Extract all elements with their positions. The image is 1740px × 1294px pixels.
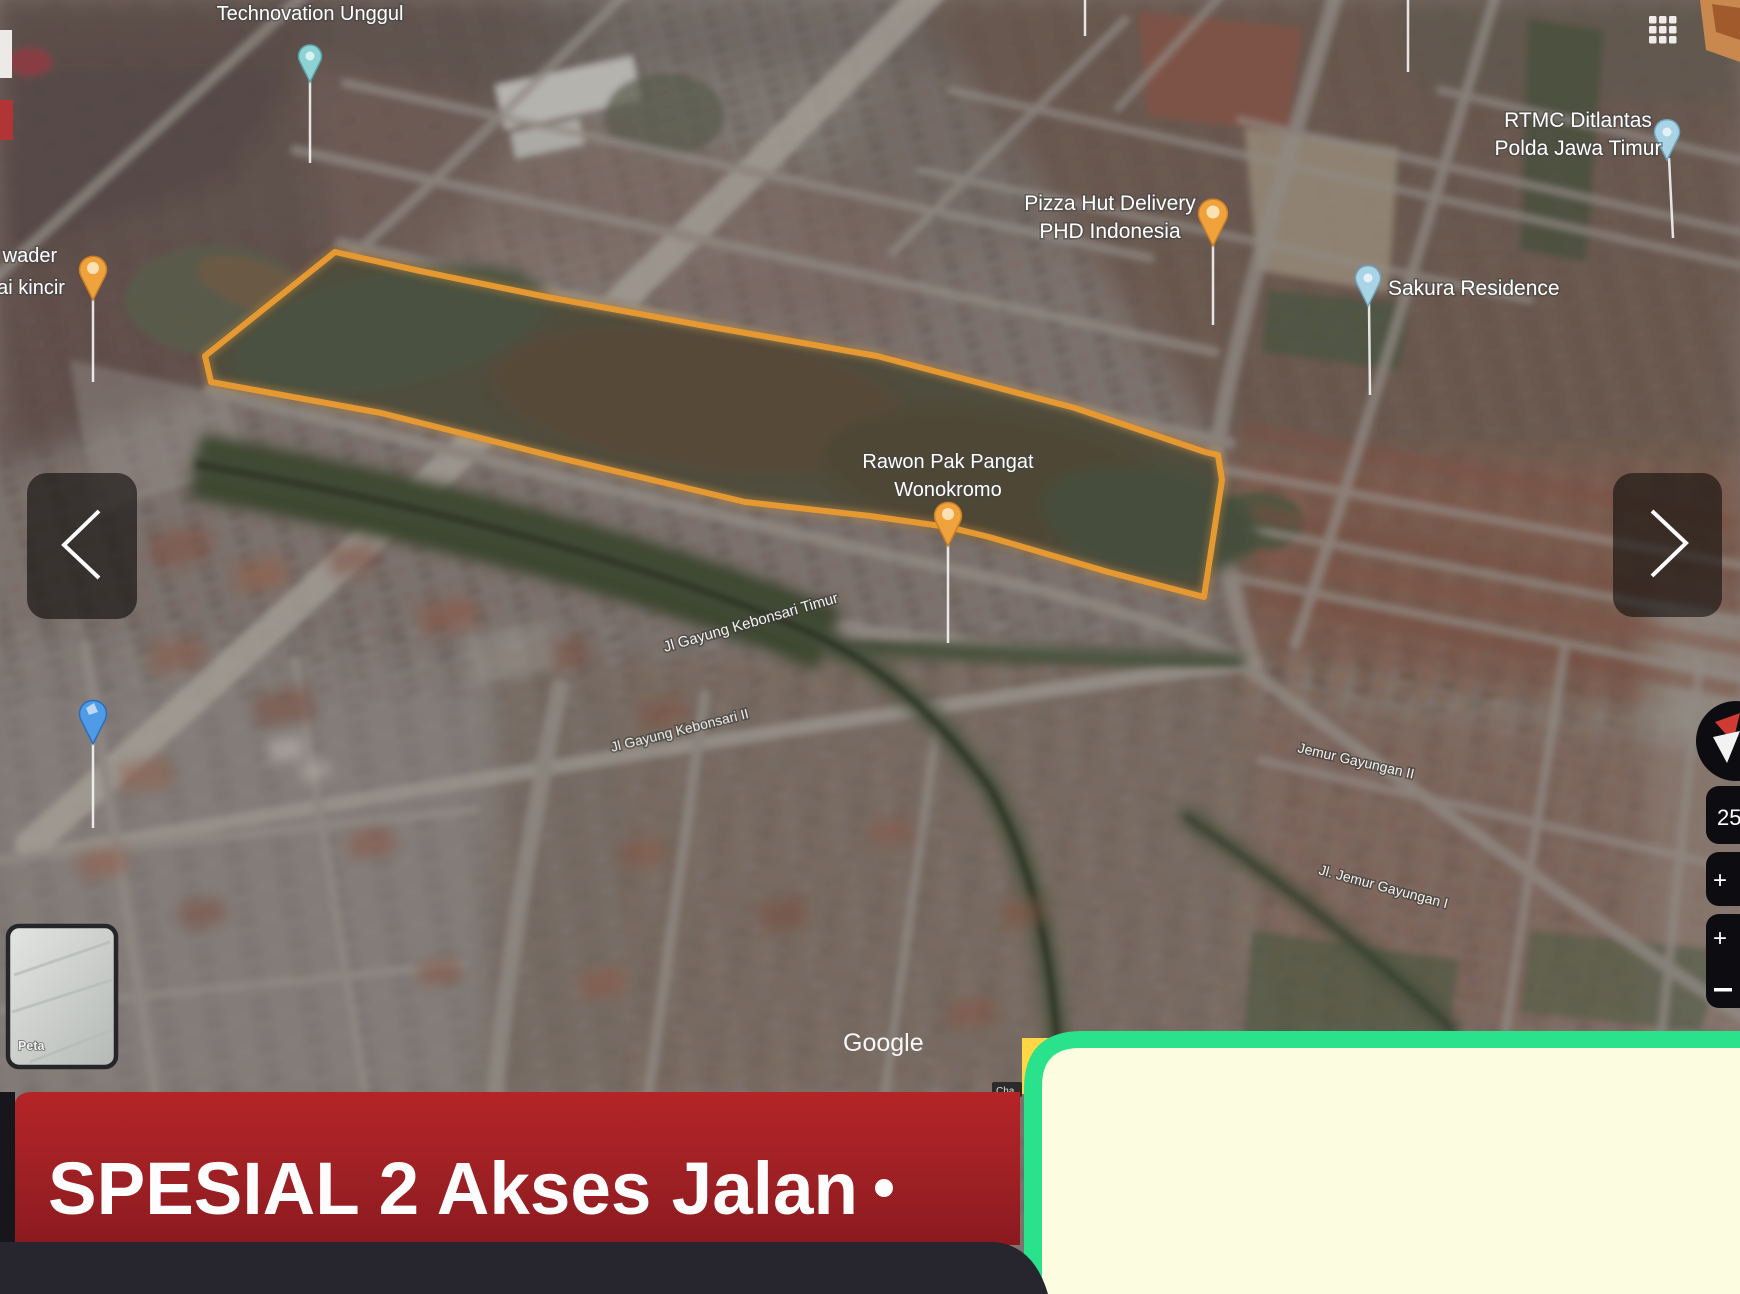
svg-text:Rawon Pak Pangat: Rawon Pak Pangat — [862, 451, 1034, 473]
svg-text:+: + — [1713, 867, 1727, 894]
svg-text:Polda Jawa Timur: Polda Jawa Timur — [1495, 137, 1662, 160]
svg-text:25: 25 — [1717, 805, 1740, 830]
svg-text:SPESIAL 2 Akses Jalan: SPESIAL 2 Akses Jalan — [48, 1147, 858, 1230]
svg-text:Sakura Residence: Sakura Residence — [1388, 277, 1560, 300]
svg-text:Peta: Peta — [18, 1039, 45, 1053]
svg-text:g wader: g wader — [0, 245, 57, 267]
svg-text:RTMC Ditlantas: RTMC Ditlantas — [1504, 109, 1652, 132]
svg-text:Wonokromo: Wonokromo — [894, 479, 1001, 501]
svg-text:Pizza Hut Delivery: Pizza Hut Delivery — [1024, 192, 1196, 215]
svg-text:+: + — [1713, 925, 1727, 952]
svg-text:dai kincir: dai kincir — [0, 277, 65, 299]
svg-text:PHD Indonesia: PHD Indonesia — [1039, 220, 1181, 243]
svg-text:Google: Google — [843, 1029, 924, 1057]
svg-text:Technovation Unggul: Technovation Unggul — [217, 3, 404, 25]
